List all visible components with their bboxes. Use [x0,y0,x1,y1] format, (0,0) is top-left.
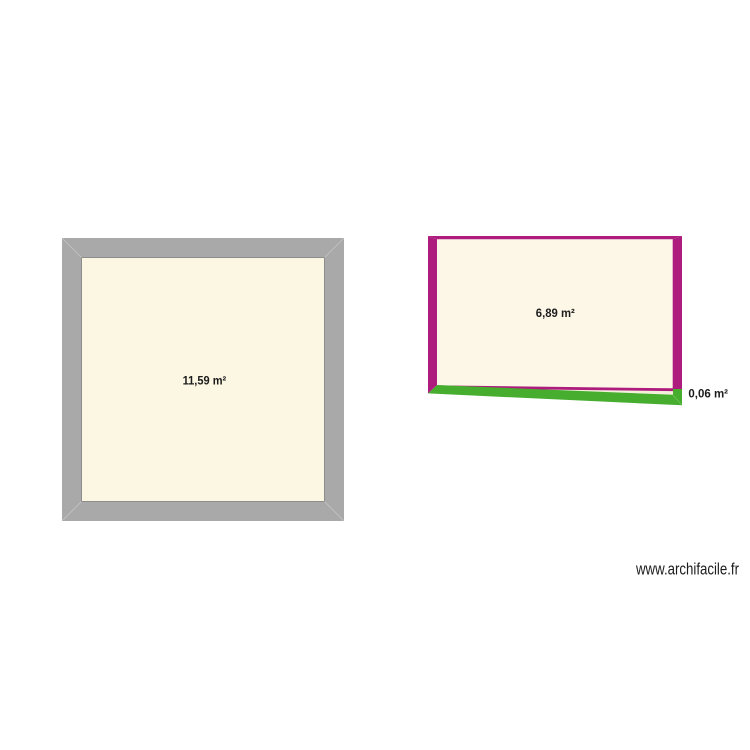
svg-text:6,89 m²: 6,89 m² [536,306,575,320]
svg-text:0,06 m²: 0,06 m² [688,386,728,400]
svg-text:www.archifacile.fr: www.archifacile.fr [635,560,739,579]
svg-text:11,59 m²: 11,59 m² [183,374,227,388]
